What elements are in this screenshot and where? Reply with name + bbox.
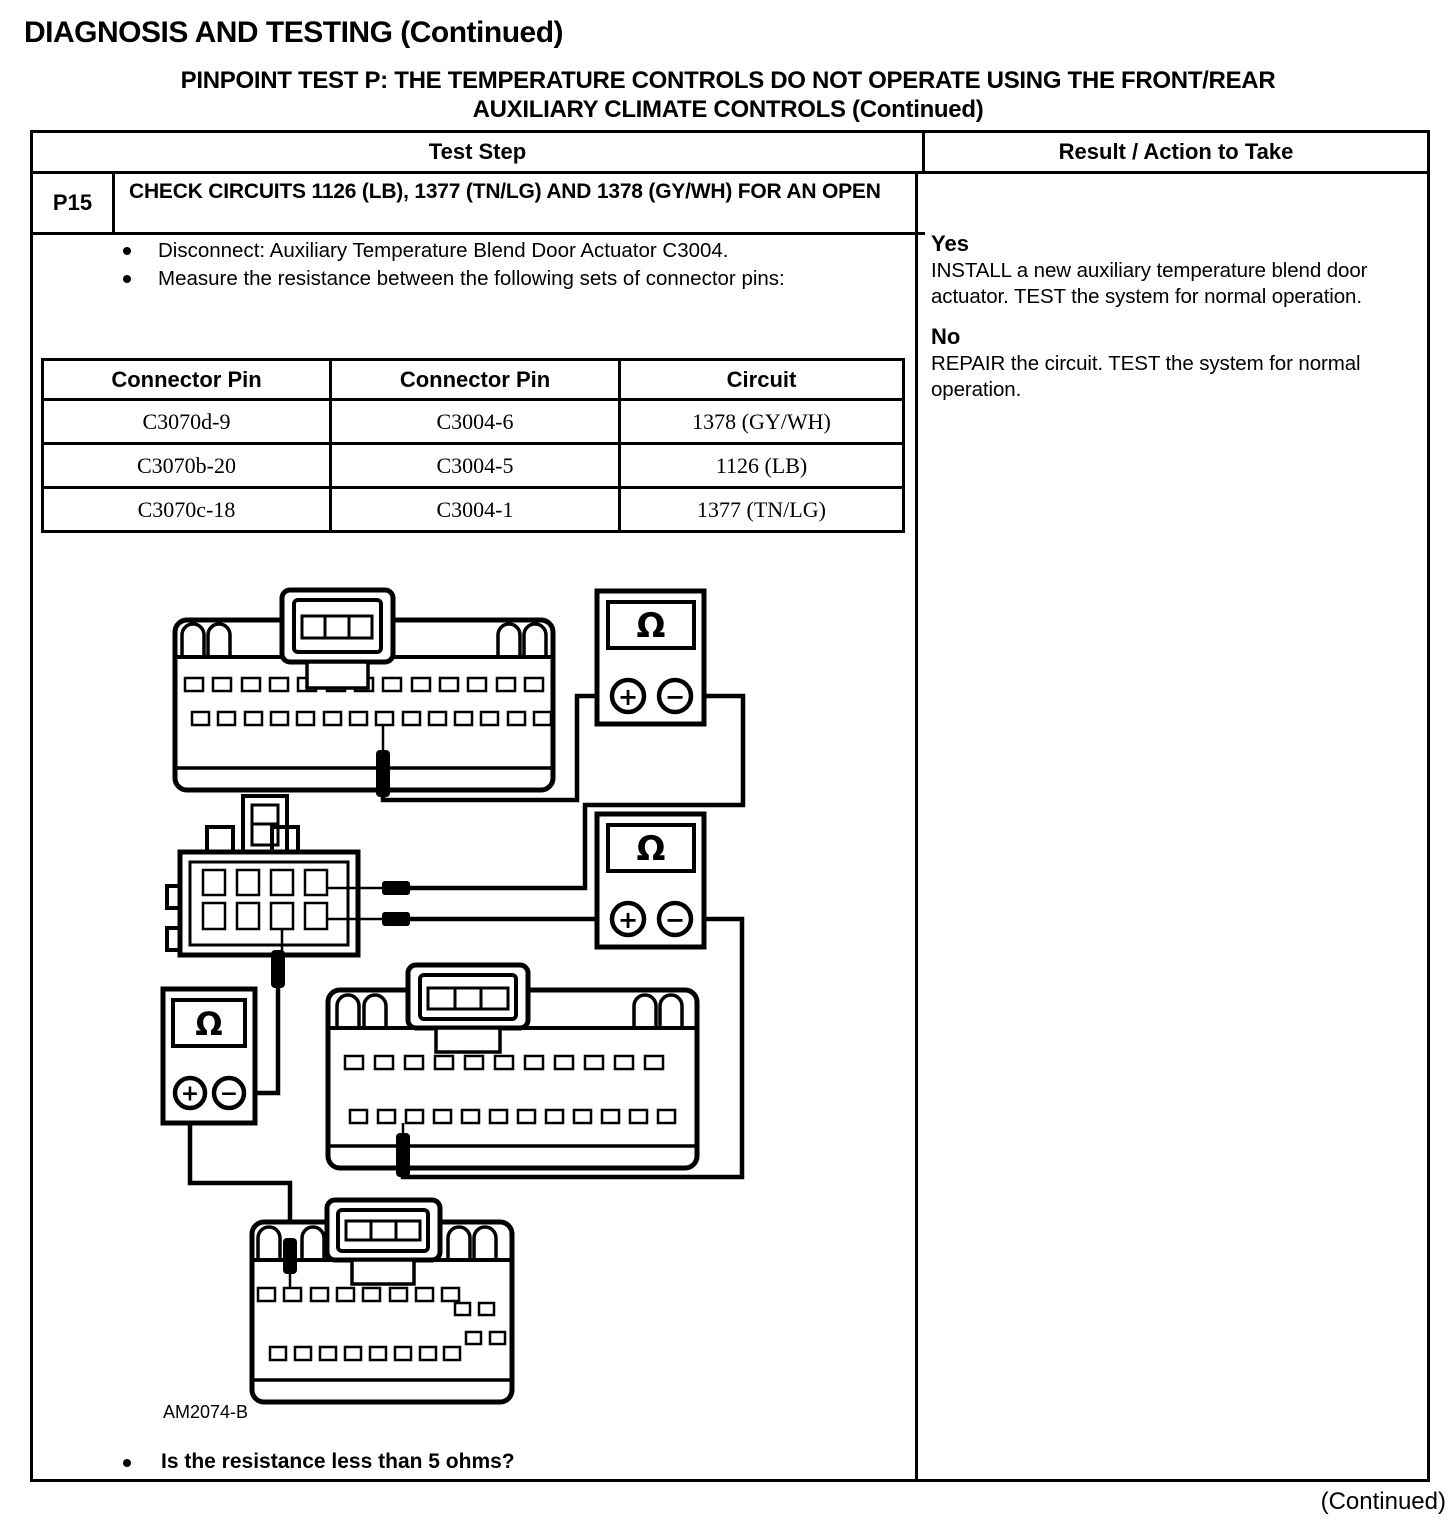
pinpoint-test-table: Test Step Result / Action to Take P15 CH… — [30, 130, 1430, 1482]
minus-icon: − — [220, 1082, 238, 1107]
circuit-cell: 1126 (LB) — [620, 444, 904, 488]
pin-table-header-row: Connector Pin Connector Pin Circuit — [43, 360, 904, 400]
connector-c3070d — [175, 590, 553, 797]
section-title-line2: AUXILIARY CLIMATE CONTROLS (Continued) — [0, 95, 1456, 124]
instruction-text: Measure the resistance between the follo… — [158, 266, 903, 292]
no-label: No — [931, 323, 1409, 351]
table-row: C3070d-9 C3004-6 1378 (GY/WH) — [43, 400, 904, 444]
minus-icon: − — [665, 683, 685, 711]
result-action-cell: Yes INSTALL a new auxiliary temperature … — [918, 174, 1427, 1479]
page-title: DIAGNOSIS AND TESTING (Continued) — [24, 16, 563, 50]
table-header-row: Test Step Result / Action to Take — [33, 133, 1427, 174]
ohm-symbol: Ω — [637, 829, 666, 869]
figure-id: AM2074-B — [163, 1402, 248, 1422]
list-item: Measure the resistance between the follo… — [123, 266, 903, 292]
test-probe — [382, 912, 410, 926]
test-step-cell: P15 CHECK CIRCUITS 1126 (LB), 1377 (TN/L… — [33, 174, 918, 1479]
pin-cell: C3070c-18 — [43, 488, 331, 532]
circuit-cell: 1378 (GY/WH) — [620, 400, 904, 444]
ohm-symbol: Ω — [195, 1005, 222, 1043]
bullet-icon — [123, 247, 131, 255]
no-action-text: REPAIR the circuit. TEST the system for … — [931, 351, 1409, 403]
test-step-header: Test Step — [33, 133, 925, 171]
yes-action-text: INSTALL a new auxiliary temperature blen… — [931, 258, 1409, 310]
table-row: C3070c-18 C3004-1 1377 (TN/LG) — [43, 488, 904, 532]
pin-cell: C3004-1 — [331, 488, 620, 532]
section-title: PINPOINT TEST P: THE TEMPERATURE CONTROL… — [0, 66, 1456, 125]
column-header: Connector Pin — [43, 360, 331, 400]
wiring-diagram: Ω + − — [33, 558, 925, 1438]
plus-icon: + — [618, 683, 638, 711]
ohmmeter-1: Ω + − — [597, 591, 704, 724]
bullet-icon — [123, 1459, 131, 1467]
connector-c3004 — [167, 796, 410, 988]
section-title-line1: PINPOINT TEST P: THE TEMPERATURE CONTROL… — [0, 66, 1456, 95]
test-probe — [271, 950, 285, 988]
ohmmeter-3: Ω + − — [163, 989, 255, 1123]
ohm-symbol: Ω — [637, 606, 666, 646]
step-id: P15 — [33, 174, 115, 232]
step-header-block: P15 CHECK CIRCUITS 1126 (LB), 1377 (TN/L… — [33, 174, 925, 235]
connector-latch — [243, 796, 287, 852]
plus-icon: + — [181, 1082, 199, 1107]
test-probe — [283, 1238, 297, 1274]
connector-c3070b — [252, 1200, 512, 1402]
ohmmeter-2: Ω + − — [597, 814, 704, 947]
pin-cell: C3070d-9 — [43, 400, 331, 444]
question-text: Is the resistance less than 5 ohms? — [161, 1450, 515, 1474]
circuit-cell: 1377 (TN/LG) — [620, 488, 904, 532]
connector-c3070c — [328, 965, 697, 1177]
step-title: CHECK CIRCUITS 1126 (LB), 1377 (TN/LG) A… — [115, 174, 925, 232]
result-action-header: Result / Action to Take — [925, 133, 1427, 171]
document-page: DIAGNOSIS AND TESTING (Continued) PINPOI… — [0, 0, 1456, 1532]
plus-icon: + — [618, 906, 638, 934]
table-body-row: P15 CHECK CIRCUITS 1126 (LB), 1377 (TN/L… — [33, 174, 1427, 1479]
test-probe — [382, 881, 410, 895]
pin-cell: C3004-5 — [331, 444, 620, 488]
test-probe — [376, 750, 390, 797]
table-row: C3070b-20 C3004-5 1126 (LB) — [43, 444, 904, 488]
column-header: Circuit — [620, 360, 904, 400]
list-item: Disconnect: Auxiliary Temperature Blend … — [123, 238, 903, 264]
question-item: Is the resistance less than 5 ohms? — [123, 1450, 515, 1474]
minus-icon: − — [665, 906, 685, 934]
continued-note: (Continued) — [1321, 1488, 1446, 1516]
instruction-text: Disconnect: Auxiliary Temperature Blend … — [158, 238, 903, 264]
pin-cell: C3004-6 — [331, 400, 620, 444]
yes-label: Yes — [931, 230, 1409, 258]
pin-row-top — [345, 1056, 663, 1069]
cavity-grid — [203, 870, 327, 929]
test-probe — [396, 1133, 410, 1177]
connector-pin-table: Connector Pin Connector Pin Circuit C307… — [41, 358, 905, 533]
column-header: Connector Pin — [331, 360, 620, 400]
pin-cell: C3070b-20 — [43, 444, 331, 488]
step-instructions: Disconnect: Auxiliary Temperature Blend … — [123, 238, 903, 294]
bullet-icon — [123, 275, 131, 283]
